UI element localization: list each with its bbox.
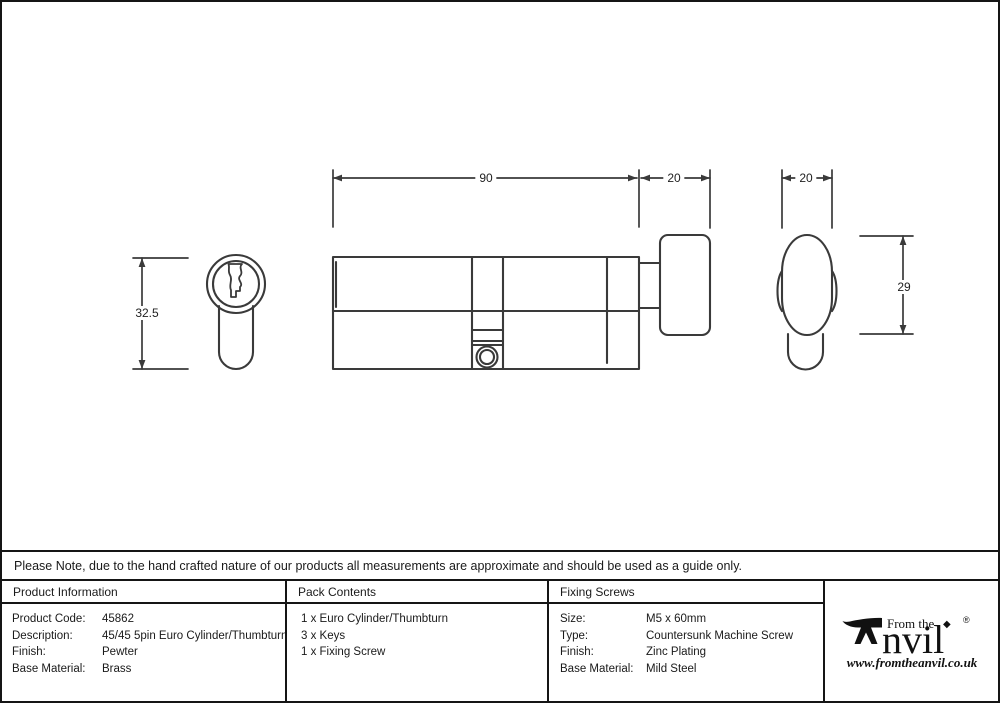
table-row: Base Material:Mild Steel (560, 661, 823, 678)
logo-url: www.fromtheanvil.co.uk (846, 655, 977, 670)
table-row: Base Material:Brass (12, 661, 285, 678)
row-label: Finish: (12, 644, 102, 661)
front-view-euro-profile (207, 255, 265, 369)
fixing-screws-column: Fixing Screws Size:M5 x 60mm Type:Counte… (547, 581, 823, 701)
row-label: Base Material: (12, 661, 102, 678)
keyway-slot (229, 264, 243, 297)
row-value: Pewter (102, 646, 138, 658)
row-label: Description: (12, 628, 102, 645)
table-row: Type:Countersunk Machine Screw (560, 628, 823, 645)
row-label: Finish: (560, 644, 646, 661)
row-label: Base Material: (560, 661, 646, 678)
pack-contents-header: Pack Contents (287, 581, 547, 604)
anvil-icon (842, 618, 882, 644)
row-value: 45/45 5pin Euro Cylinder/Thumbturn (102, 630, 285, 642)
row-value: M5 x 60mm (646, 613, 706, 625)
list-item: 1 x Fixing Screw (301, 644, 547, 661)
pack-contents-column: Pack Contents 1 x Euro Cylinder/Thumbtur… (285, 581, 547, 701)
fixing-screws-header: Fixing Screws (549, 581, 823, 604)
thumbturn-knob-side (660, 235, 710, 335)
table-row: Size:M5 x 60mm (560, 611, 823, 628)
end-view-thumbturn (778, 235, 837, 370)
row-value: 45862 (102, 613, 134, 625)
row-value: Zinc Plating (646, 646, 706, 658)
product-information-header: Product Information (2, 581, 285, 604)
list-item: 1 x Euro Cylinder/Thumbturn (301, 611, 547, 628)
drawing-canvas (2, 2, 998, 550)
product-spec-sheet: 32.5 90 20 20 29 Please Note, due to the… (0, 0, 1000, 703)
product-information-column: Product Information Product Code:45862 D… (2, 581, 285, 701)
table-row: Product Code:45862 (12, 611, 285, 628)
technical-drawing: 32.5 90 20 20 29 (2, 2, 998, 550)
table-row: Finish:Zinc Plating (560, 644, 823, 661)
dim-label-knob-side: 20 (663, 171, 684, 185)
list-item: 3 x Keys (301, 628, 547, 645)
row-value: Countersunk Machine Screw (646, 630, 793, 642)
registered-trademark-icon: ® (963, 615, 970, 625)
table-row: Finish:Pewter (12, 644, 285, 661)
dim-label-knob-height: 29 (893, 280, 914, 294)
row-value: Brass (102, 663, 131, 675)
spec-table: Product Information Product Code:45862 D… (2, 581, 998, 701)
row-label: Type: (560, 628, 646, 645)
brand-logo-cell: From the ◆ nvil ® www.fromtheanvil.co.uk (823, 581, 998, 701)
row-label: Product Code: (12, 611, 102, 628)
row-label: Size: (560, 611, 646, 628)
dim-label-body-length: 90 (475, 171, 496, 185)
dim-label-knob-end: 20 (795, 171, 816, 185)
dim-label-front-height: 32.5 (131, 306, 162, 320)
row-value: Mild Steel (646, 663, 697, 675)
table-row: Description:45/45 5pin Euro Cylinder/Thu… (12, 628, 285, 645)
measurement-note-text: Please Note, due to the hand crafted nat… (14, 559, 742, 573)
dimension-lines (133, 170, 913, 369)
anvil-logo: From the ◆ nvil ® www.fromtheanvil.co.uk (842, 611, 982, 671)
side-view-cylinder (333, 235, 710, 369)
measurement-note-bar: Please Note, due to the hand crafted nat… (2, 550, 998, 581)
